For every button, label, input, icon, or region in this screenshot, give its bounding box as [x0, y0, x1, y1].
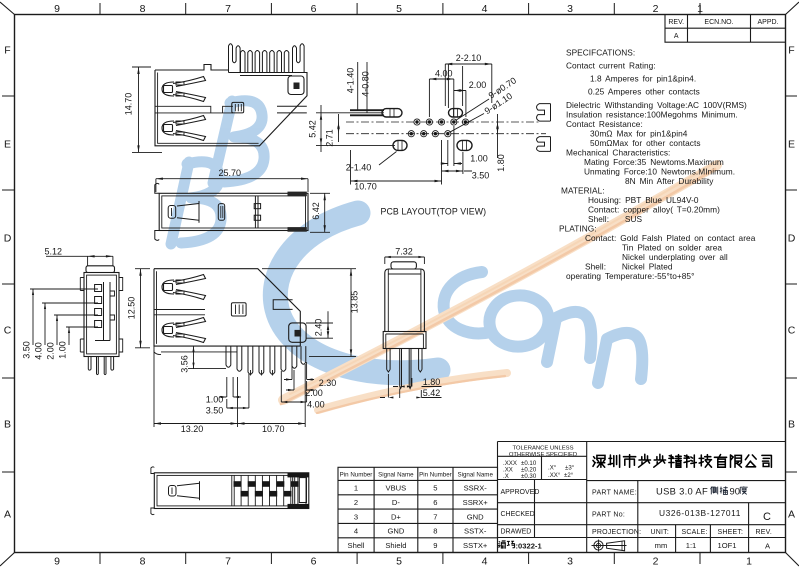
- svg-text:5: 5: [396, 556, 402, 568]
- svg-text:D: D: [4, 233, 12, 245]
- svg-text:6.42: 6.42: [311, 202, 321, 220]
- svg-text:Contact current Rating:: Contact current Rating:: [566, 61, 656, 71]
- svg-text:D: D: [788, 233, 796, 245]
- svg-text:OTHERWISE SPECIFIED: OTHERWISE SPECIFIED: [509, 452, 577, 458]
- svg-text:REV.: REV.: [756, 529, 773, 536]
- svg-text:1.00: 1.00: [470, 154, 488, 164]
- svg-text:9: 9: [54, 556, 60, 568]
- svg-text:SPECIFCATIONS:: SPECIFCATIONS:: [566, 48, 635, 58]
- svg-text:Shell: Nickel Plated: Shell: Nickel Plated: [585, 262, 673, 272]
- svg-text:SSRX-: SSRX-: [464, 484, 488, 493]
- svg-text:Mechanical Characteristics:: Mechanical Characteristics:: [566, 148, 670, 158]
- svg-text:2.30: 2.30: [319, 378, 337, 388]
- svg-text:4: 4: [354, 527, 358, 536]
- svg-text:4.00: 4.00: [34, 342, 44, 360]
- svg-text:12.50: 12.50: [126, 297, 136, 320]
- svg-text:13.85: 13.85: [349, 291, 359, 314]
- svg-text:3.56: 3.56: [179, 355, 189, 373]
- svg-text:5.42: 5.42: [423, 388, 441, 398]
- svg-text:9: 9: [54, 3, 60, 15]
- svg-text:1: 1: [354, 484, 358, 493]
- svg-text:B: B: [4, 419, 11, 431]
- svg-text:E: E: [4, 139, 11, 151]
- svg-text:5.42: 5.42: [308, 120, 318, 138]
- svg-text:C: C: [763, 511, 771, 523]
- svg-text:SSRX+: SSRX+: [463, 498, 489, 507]
- svg-text:0.25 Amperes other contacts: 0.25 Amperes other contacts: [588, 87, 700, 97]
- svg-text:5.12: 5.12: [45, 247, 63, 257]
- svg-text:5: 5: [396, 3, 402, 15]
- svg-text:10.70: 10.70: [354, 182, 377, 192]
- svg-text:±3°: ±3°: [565, 465, 575, 472]
- svg-text:2: 2: [653, 3, 659, 15]
- svg-text:PCB LAYOUT(TOP VIEW): PCB LAYOUT(TOP VIEW): [381, 207, 487, 217]
- svg-text:2-1.40: 2-1.40: [346, 162, 372, 172]
- svg-text:7.32: 7.32: [395, 246, 413, 256]
- svg-text:UNIT:: UNIT:: [651, 529, 670, 536]
- svg-text:2.00: 2.00: [46, 342, 56, 360]
- svg-text:F: F: [4, 45, 10, 57]
- svg-text:1: 1: [697, 3, 703, 15]
- svg-text:operating Temperature:-55°to+8: operating Temperature:-55°to+85°: [566, 271, 694, 281]
- svg-text:1.00: 1.00: [206, 395, 224, 405]
- svg-text:VBUS: VBUS: [386, 484, 407, 493]
- svg-text:Shell: Shell: [348, 541, 365, 550]
- svg-text:4: 4: [482, 3, 488, 15]
- svg-text:1OF1: 1OF1: [718, 541, 737, 550]
- svg-text:REV.: REV.: [668, 19, 684, 26]
- svg-text:.XX°: .XX°: [548, 472, 561, 479]
- svg-text:7: 7: [225, 3, 231, 15]
- svg-text:PART NAME:: PART NAME:: [592, 489, 637, 496]
- svg-text:PART No:: PART No:: [592, 511, 625, 518]
- svg-text:25.70: 25.70: [219, 168, 242, 178]
- svg-text:1: 1: [746, 556, 752, 568]
- svg-text:TOLERANCE UNLESS: TOLERANCE UNLESS: [512, 446, 573, 452]
- svg-text:ECN.NO.: ECN.NO.: [704, 19, 733, 26]
- svg-text:A: A: [674, 33, 679, 40]
- svg-text:B: B: [788, 419, 795, 431]
- svg-text:GND: GND: [467, 512, 484, 521]
- svg-text:8: 8: [140, 556, 146, 568]
- svg-text:D-: D-: [392, 498, 400, 507]
- svg-text:SCALE:: SCALE:: [682, 529, 708, 536]
- svg-text:A: A: [4, 509, 11, 521]
- svg-text:90: 90: [730, 485, 740, 496]
- svg-text:Signal Name: Signal Name: [378, 472, 414, 479]
- svg-text:A: A: [788, 509, 795, 521]
- svg-text:30mΩ Max for pin1&pin4: 30mΩ Max for pin1&pin4: [590, 129, 688, 139]
- svg-text:50mΩMax for other contacts: 50mΩMax for other contacts: [590, 138, 701, 148]
- svg-text:SSTX-: SSTX-: [464, 527, 487, 536]
- svg-text:6: 6: [311, 556, 317, 568]
- svg-text:Unmating Force:10 Newtoms.MIni: Unmating Force:10 Newtoms.MInimum.: [584, 167, 735, 177]
- svg-text:7: 7: [225, 556, 231, 568]
- svg-text:7: 7: [433, 512, 437, 521]
- svg-text:8N Min After Durability: 8N Min After Durability: [625, 176, 714, 186]
- svg-text:Mating Force:35 Newtoms.Maximu: Mating Force:35 Newtoms.Maximum: [584, 157, 724, 167]
- svg-text:SSTX+: SSTX+: [463, 541, 488, 550]
- svg-text:3.50: 3.50: [22, 341, 32, 359]
- svg-text:6: 6: [311, 3, 317, 15]
- svg-text:14.70: 14.70: [124, 93, 134, 116]
- svg-text:13.20: 13.20: [181, 424, 204, 434]
- svg-text:2: 2: [354, 498, 358, 507]
- svg-text:Tin Plated on solder area: Tin Plated on solder area: [622, 243, 722, 253]
- svg-text:Shield: Shield: [385, 541, 406, 550]
- svg-text:3.50: 3.50: [472, 171, 490, 181]
- svg-text:Contact Resistance:: Contact Resistance:: [566, 119, 643, 129]
- svg-text:9: 9: [433, 541, 437, 550]
- svg-text:4-0.80: 4-0.80: [361, 71, 371, 97]
- svg-text:Insulation resistance:100Megoh: Insulation resistance:100Megohms Minimum…: [566, 110, 738, 120]
- svg-text:APPROVED: APPROVED: [501, 489, 540, 496]
- svg-text:4: 4: [482, 556, 488, 568]
- svg-text:MATERIAL:: MATERIAL:: [561, 186, 605, 196]
- svg-text:3: 3: [567, 3, 573, 15]
- svg-text:1.80: 1.80: [423, 377, 441, 387]
- svg-text:USB 3.0 AF: USB 3.0 AF: [656, 485, 708, 496]
- svg-text:Nickel underplating over all: Nickel underplating over all: [622, 252, 728, 262]
- svg-text:3: 3: [567, 556, 573, 568]
- svg-text:Pin Number: Pin Number: [419, 472, 452, 479]
- svg-text:D+: D+: [391, 512, 401, 521]
- svg-text:CHECKED: CHECKED: [501, 511, 535, 518]
- svg-text:2.00: 2.00: [305, 388, 323, 398]
- svg-text:8: 8: [433, 527, 437, 536]
- svg-text:8: 8: [140, 3, 146, 15]
- svg-text:10.70: 10.70: [262, 424, 285, 434]
- svg-text:5: 5: [433, 484, 437, 493]
- svg-text:2: 2: [653, 556, 659, 568]
- svg-text:1:1: 1:1: [686, 541, 697, 550]
- svg-text:1.80: 1.80: [496, 154, 506, 172]
- svg-text:2.00: 2.00: [469, 80, 487, 90]
- svg-text:2.40: 2.40: [314, 319, 324, 337]
- svg-text:4-1.40: 4-1.40: [345, 68, 355, 94]
- svg-text:F: F: [788, 45, 794, 57]
- svg-text:U326-013B-127011: U326-013B-127011: [659, 508, 741, 518]
- svg-text:.X°: .X°: [548, 465, 557, 472]
- svg-text:1.00: 1.00: [58, 341, 68, 359]
- svg-text:mm: mm: [655, 541, 668, 550]
- svg-text:DRAWED: DRAWED: [501, 528, 532, 535]
- svg-text:Contact: Gold Falsh Plated on: Contact: Gold Falsh Plated on contact ar…: [585, 233, 756, 243]
- svg-text:C: C: [4, 325, 12, 337]
- svg-text:PLATING:: PLATING:: [559, 224, 597, 234]
- svg-text:4.00: 4.00: [307, 400, 325, 410]
- svg-text:Signal Name: Signal Name: [457, 472, 493, 479]
- svg-text:SHEET:: SHEET:: [718, 529, 744, 536]
- svg-text:E: E: [788, 139, 795, 151]
- svg-text:C: C: [788, 325, 796, 337]
- svg-text:2.71: 2.71: [325, 129, 335, 147]
- svg-text:Dielectric Withstanding Voltag: Dielectric Withstanding Voltage:AC 100V(…: [566, 100, 747, 110]
- svg-text:.X: .X: [503, 473, 509, 480]
- svg-text:APPD.: APPD.: [757, 19, 778, 26]
- svg-text:±0.30: ±0.30: [521, 473, 537, 480]
- svg-text:Contact: copper alloy( T=0.20m: Contact: copper alloy( T=0.20mm): [588, 205, 720, 215]
- svg-text:3: 3: [354, 512, 358, 521]
- svg-text:Shell: SUS: Shell: SUS: [588, 214, 643, 224]
- svg-text:Pin Number: Pin Number: [340, 472, 373, 479]
- svg-text:6: 6: [433, 498, 437, 507]
- svg-text:2-2.10: 2-2.10: [456, 53, 482, 63]
- svg-text:PROJECTION:: PROJECTION:: [592, 529, 641, 536]
- svg-text:4.00: 4.00: [435, 68, 453, 78]
- svg-text:1.8 Amperes for pin1&pin4.: 1.8 Amperes for pin1&pin4.: [590, 74, 696, 84]
- svg-text:Housing: PBT Blue UL94V-0: Housing: PBT Blue UL94V-0: [588, 195, 699, 205]
- svg-text:3.50: 3.50: [206, 406, 224, 416]
- svg-text:GND: GND: [387, 527, 404, 536]
- svg-text:±2°: ±2°: [564, 472, 574, 479]
- svg-text::0322-1: :0322-1: [516, 541, 543, 550]
